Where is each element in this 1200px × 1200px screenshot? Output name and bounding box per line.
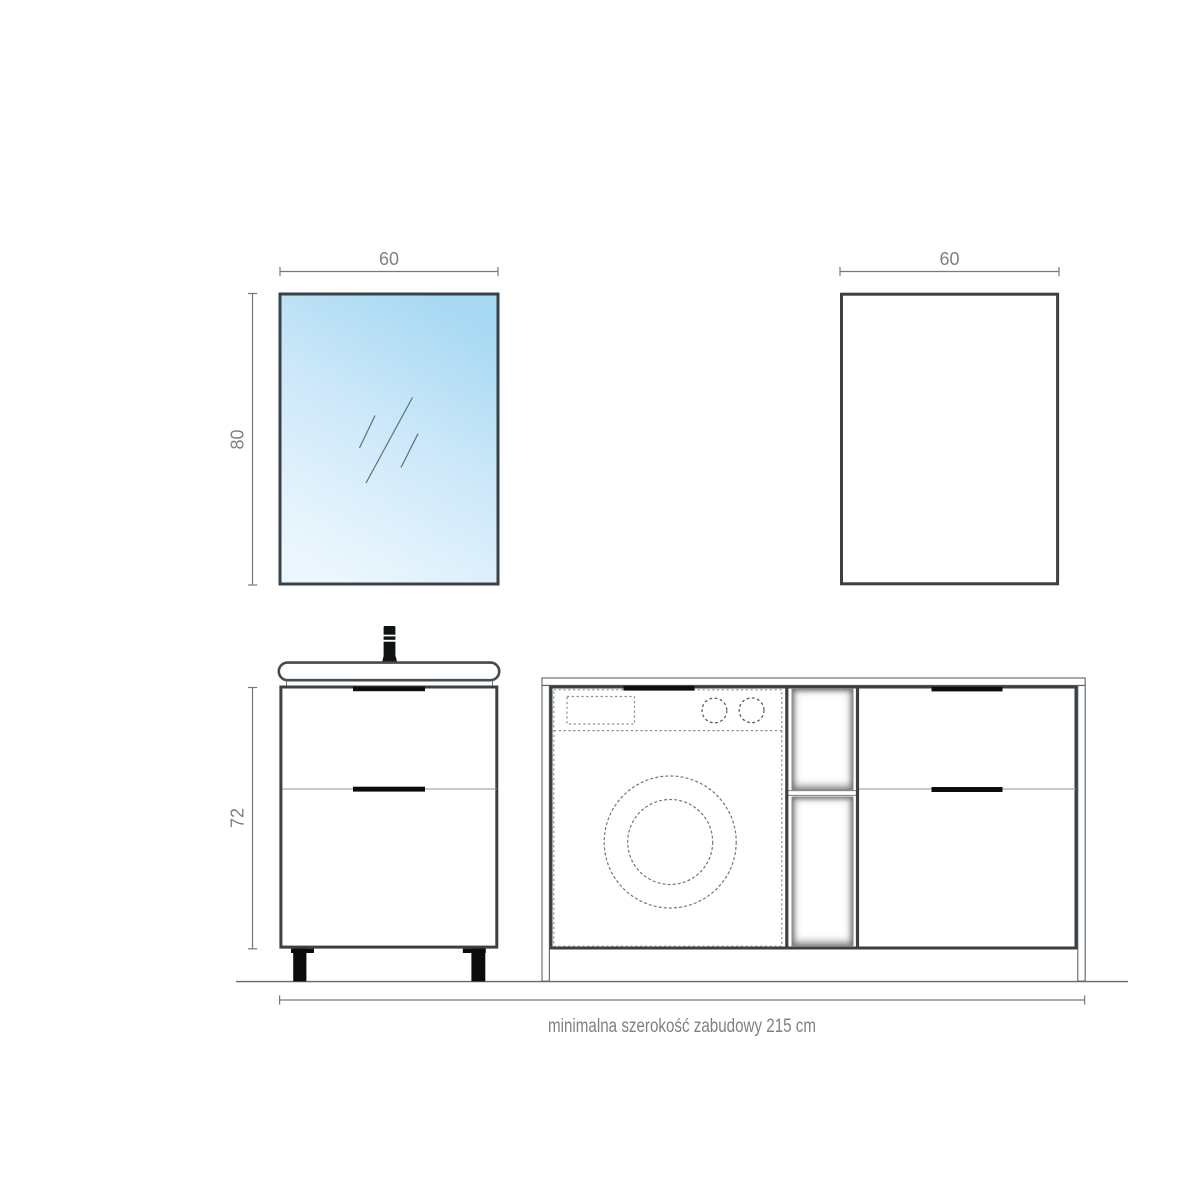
svg-text:72: 72 (228, 808, 248, 828)
svg-text:60: 60 (379, 249, 399, 269)
svg-text:80: 80 (228, 429, 248, 449)
svg-text:60: 60 (939, 249, 959, 269)
svg-text:minimalna szerokość zabudowy 2: minimalna szerokość zabudowy 215 cm (548, 1016, 816, 1037)
